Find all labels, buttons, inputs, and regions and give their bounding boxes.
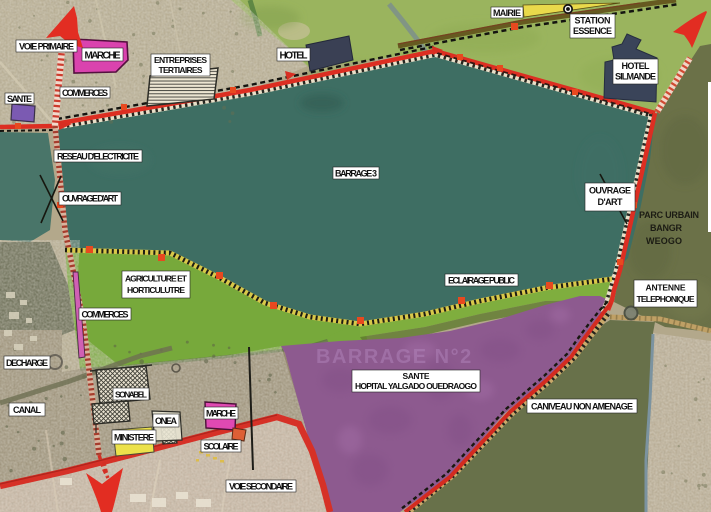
svg-text:ESSENCE: ESSENCE: [573, 26, 612, 36]
svg-text:CANAL: CANAL: [13, 405, 42, 415]
svg-text:SILMANDE: SILMANDE: [615, 72, 656, 82]
svg-text:MINISTERE: MINISTERE: [114, 433, 154, 443]
svg-text:TERTIAIRES: TERTIAIRES: [159, 65, 203, 75]
svg-text:SONABEL: SONABEL: [115, 389, 147, 399]
svg-text:ANTENNE: ANTENNE: [646, 283, 686, 293]
svg-text:HOTEL: HOTEL: [622, 61, 651, 71]
svg-text:OUVRAGE: OUVRAGE: [589, 186, 631, 196]
svg-text:HOTEL: HOTEL: [280, 50, 308, 61]
svg-text:SCOLAIRE: SCOLAIRE: [204, 441, 239, 451]
svg-text:DECHARGE: DECHARGE: [6, 358, 48, 368]
svg-text:OUVRAGE D'ART: OUVRAGE D'ART: [62, 194, 119, 204]
svg-text:TELEPHONIQUE: TELEPHONIQUE: [637, 294, 695, 304]
svg-text:SANTE: SANTE: [7, 94, 32, 104]
svg-text:PARC URBAIN: PARC URBAIN: [639, 210, 699, 220]
svg-text:COMMERCES: COMMERCES: [62, 88, 108, 98]
svg-text:D'ART: D'ART: [598, 197, 624, 207]
svg-text:VOIE SECONDAIRE: VOIE SECONDAIRE: [229, 481, 293, 491]
svg-text:MARCHE: MARCHE: [85, 51, 121, 62]
svg-text:AGRICULTURE ET: AGRICULTURE ET: [125, 274, 188, 284]
svg-text:MARCHE: MARCHE: [206, 408, 236, 418]
svg-text:ECLAIRAGE PUBLIC: ECLAIRAGE PUBLIC: [448, 275, 516, 285]
svg-text:ENTREPRISES: ENTREPRISES: [154, 55, 207, 65]
svg-text:COMMERCES: COMMERCES: [82, 309, 129, 319]
svg-text:HORTICULUTRE: HORTICULUTRE: [127, 285, 185, 295]
svg-text:SANTE: SANTE: [403, 371, 430, 381]
svg-text:ONEA: ONEA: [155, 416, 178, 426]
svg-text:BARRAGE 3: BARRAGE 3: [335, 168, 377, 178]
svg-text:RESEAU D'ELECTRICITE: RESEAU D'ELECTRICITE: [57, 151, 139, 161]
svg-text:BARRAGE N°2: BARRAGE N°2: [316, 346, 473, 368]
svg-text:WEOGO: WEOGO: [646, 236, 682, 246]
svg-text:STATION: STATION: [575, 16, 611, 26]
svg-text:MAIRIE: MAIRIE: [493, 8, 521, 18]
svg-text:HOPITAL YALGADO OUEDRAOGO: HOPITAL YALGADO OUEDRAOGO: [355, 381, 477, 391]
svg-text:VOIE PRIMAIRE: VOIE PRIMAIRE: [19, 42, 74, 52]
svg-text:CANIVEAU NON AMENAGE: CANIVEAU NON AMENAGE: [531, 401, 633, 411]
svg-text:BANGR: BANGR: [650, 223, 683, 233]
